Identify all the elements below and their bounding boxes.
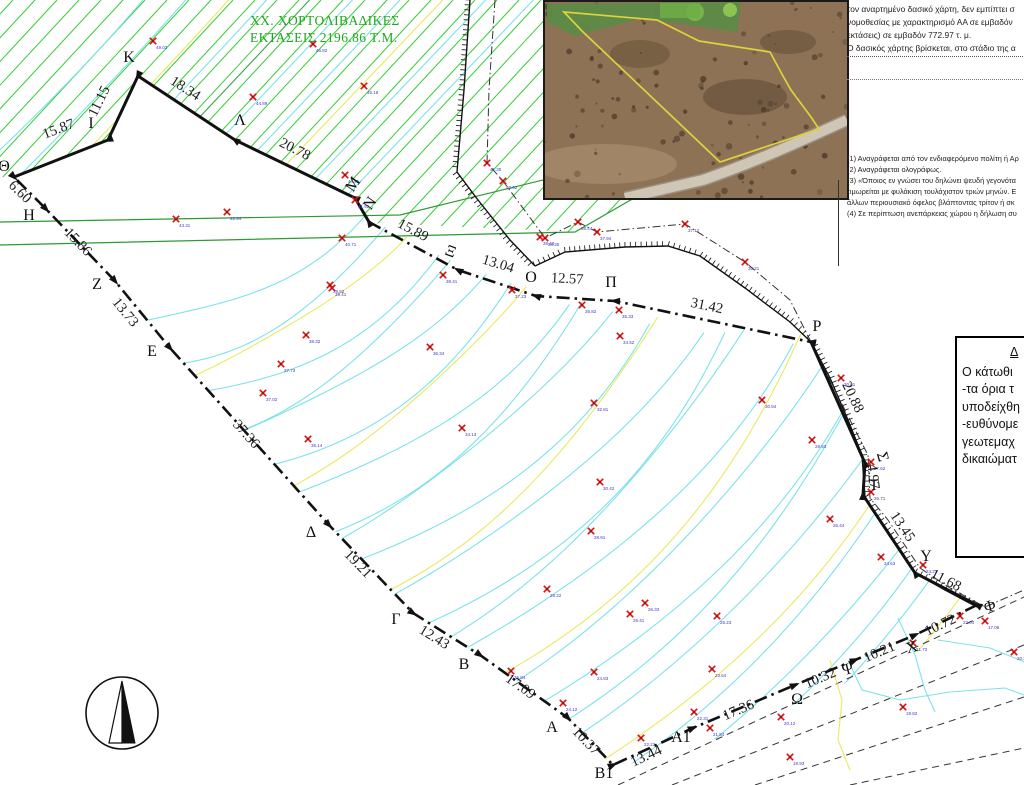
speckle (600, 109, 604, 113)
declaration-line: -ευθύνομε (962, 416, 1024, 434)
distance-label: 12.57 (551, 270, 584, 288)
hatch-line (0, 0, 167, 620)
embankment-tick (484, 212, 488, 215)
spot-elevation-value: 17.06 (988, 625, 1000, 630)
embankment-tick (753, 290, 756, 294)
speckle (738, 173, 745, 180)
spot-elevation-marker: 38.32 (303, 332, 321, 344)
spot-elevation-value: 34.52 (623, 340, 635, 345)
spot-elevation-value: 37.23 (515, 294, 527, 299)
dotted-rule (847, 79, 1024, 80)
spot-elevation-marker: 39.52 (327, 282, 345, 294)
embankment-tick (493, 224, 497, 227)
hatch-line (0, 0, 101, 620)
vertex-label-Κ: Κ (123, 49, 135, 66)
distance-label: 15.87 (40, 116, 76, 143)
hatch-line (0, 0, 519, 620)
speckle (818, 53, 823, 58)
spot-elevation-value: 22.31 (697, 716, 709, 721)
embankment-line (811, 340, 977, 607)
speckle (774, 102, 777, 105)
spot-elevation-marker: 21.84 (707, 725, 725, 737)
speckle (774, 44, 776, 46)
contour-line (106, 216, 365, 329)
contour-line (129, 317, 658, 654)
speckle (566, 48, 572, 54)
embankment-tick (765, 299, 768, 303)
spot-elevation-value: 23.64 (715, 673, 727, 678)
road-dashed-line (755, 697, 1024, 785)
vertex-label-Ζ: Ζ (92, 276, 102, 293)
speckle (611, 97, 614, 100)
speckle (575, 95, 579, 99)
embankment-tick (496, 228, 500, 231)
spot-elevation-marker: 22.04 (957, 613, 975, 625)
distance-label: 13.04 (480, 252, 517, 277)
distance-label: 20.78 (277, 135, 313, 164)
vertex-label-Α1: Α1 (671, 729, 691, 746)
speckle (700, 86, 704, 90)
speckle (713, 57, 717, 61)
spot-elevation-value: 40.62 (506, 185, 518, 190)
spot-elevation-marker: 24.83 (591, 669, 609, 681)
spot-elevation-marker: 37.73 (278, 361, 296, 373)
speckle (683, 109, 687, 113)
speckle (721, 188, 728, 195)
embankment-tick (521, 255, 525, 258)
embankment-tick (704, 255, 707, 259)
embankment-tick (834, 385, 839, 387)
embankment-tick (474, 200, 478, 203)
vertex-label-Υ: Υ (920, 548, 932, 565)
contour-line (141, 343, 876, 785)
vertex-label-Β: Β (459, 656, 470, 673)
vertex-label-Ε: Ε (147, 343, 157, 360)
contour-line (143, 332, 884, 785)
speckle (646, 106, 649, 109)
footnote-line: άλλων περιουσιακό όφελος βλάπτοντας τρίτ… (847, 197, 1024, 208)
stream-line (938, 640, 1024, 662)
speckle (616, 97, 621, 102)
embankment-tick (761, 296, 764, 300)
spot-elevation-marker: 37.12 (682, 221, 700, 233)
spot-elevation-marker: 24.63 (878, 554, 896, 566)
speckle (612, 192, 615, 195)
speckle (672, 140, 675, 143)
speckle (840, 17, 842, 19)
speckle (653, 70, 659, 76)
north-arrow-left-half (109, 681, 122, 743)
speckle (768, 101, 774, 107)
spot-elevation-marker: 36.34 (427, 344, 445, 356)
vertex-label-Φ: Φ (982, 597, 998, 617)
embankment-tick (538, 259, 540, 264)
contour-line (114, 257, 453, 450)
speckle (782, 136, 785, 139)
embankment-tick (823, 362, 827, 364)
spot-elevation-marker: 34.13 (459, 425, 477, 437)
spot-elevation-value: 36.34 (433, 351, 445, 356)
distance-label: 4.97 (863, 463, 882, 490)
spot-elevation-marker: 43.31 (173, 216, 191, 228)
embankment-tick (745, 284, 748, 288)
speckle (766, 109, 769, 112)
spot-elevation-value: 25.23 (720, 620, 732, 625)
declaration-line: -τα όρια τ (962, 381, 1024, 399)
speckle (758, 100, 763, 105)
spot-elevation-marker: 30.42 (597, 479, 615, 491)
speckle (762, 121, 767, 126)
embankment-tick (770, 303, 773, 307)
embankment-tick (782, 312, 785, 316)
speckle (810, 7, 812, 9)
spot-elevation-value: 38.32 (309, 339, 321, 344)
spot-elevation-value: 30.84 (765, 404, 777, 409)
embankment-tick (668, 241, 669, 246)
speckle (654, 84, 658, 88)
speckle (640, 52, 642, 54)
vertex-label-Λ: Λ (234, 112, 246, 129)
distance-label: 13.73 (109, 295, 142, 330)
contour-line (0, 0, 310, 325)
topographic-map-canvas: 49.0346.8244.8945.1641.3040.6238.3538.44… (0, 0, 1024, 785)
spot-elevation-value: 40.71 (345, 242, 357, 247)
speckle (741, 31, 746, 36)
embankment-tick (543, 257, 545, 262)
distance-label: 10.32 (802, 665, 838, 692)
declaration-line: γεωτεμαχ (962, 434, 1024, 452)
distance-label: 15.89 (395, 216, 431, 245)
hatch-line (0, 0, 79, 620)
embankment-tick (528, 262, 532, 265)
embankment-tick (480, 208, 484, 211)
contour-line (134, 330, 744, 731)
note-line: νομοθεσίας με χαρακτηρισμό ΑΑ σε εμβαδόν (847, 16, 1024, 29)
note-line: εκτάσεις) σε εμβαδόν 772.97 τ. μ. (847, 29, 1024, 42)
embankment-line (452, 0, 535, 266)
spot-elevation-marker: 42.94 (224, 209, 242, 221)
speckle (744, 61, 748, 65)
speckle (804, 124, 809, 129)
speckle (795, 8, 798, 11)
speckle (595, 148, 597, 150)
embankment-tick (825, 367, 829, 369)
speckle (777, 85, 780, 88)
embankment-tick (465, 188, 469, 191)
spot-elevation-value: 20.31 (1017, 656, 1024, 661)
speckle (784, 103, 790, 109)
embankment-tick (774, 306, 777, 310)
spot-elevation-value: 35.14 (311, 443, 323, 448)
embankment-tick (798, 326, 801, 330)
embankment-tick (830, 376, 835, 378)
speckle (696, 190, 701, 195)
vertex-label-Ο: Ο (525, 269, 537, 286)
vertex-label-Δ: Δ (306, 524, 316, 541)
vertex-label-Ξ: Ξ (443, 242, 458, 261)
embankment-tick (858, 443, 863, 445)
vertex-label-Ω: Ω (791, 691, 803, 708)
road-dashed-line (850, 748, 1024, 785)
embankment-tick (510, 244, 514, 247)
forest-map-note-block: τον αναρτημένο δασικό χάρτη, δεν εμπίπτε… (847, 3, 1024, 80)
contour-line (111, 255, 439, 404)
spot-elevation-value: 43.31 (179, 223, 191, 228)
hatch-line (0, 0, 13, 620)
embankment-tick (679, 245, 680, 250)
speckle (716, 152, 720, 156)
speckle (580, 108, 584, 112)
hatch-line (0, 0, 343, 620)
spot-elevation-value: 37.12 (688, 228, 700, 233)
embankment-tick (684, 246, 685, 251)
speckle (596, 79, 600, 83)
spot-elevation-marker: 34.52 (617, 333, 635, 345)
vertex-label-Ρ: Ρ (813, 318, 822, 335)
embankment-tick (553, 252, 555, 257)
speckle (643, 22, 646, 25)
embankment-tick (794, 322, 797, 326)
spot-elevation-value: 24.63 (884, 561, 896, 566)
spot-elevation-value: 39.52 (333, 289, 345, 294)
speckle (821, 95, 826, 100)
north-arrow-right-half (122, 681, 135, 743)
footnote-line: τιμωρείται με φυλάκιση τουλάχιστον τριών… (847, 186, 1024, 197)
speckle (601, 124, 604, 127)
contour-line (130, 333, 704, 676)
embankment-tick (733, 275, 736, 279)
speckle (748, 124, 750, 126)
vertex-marker (530, 291, 542, 301)
declaration-box: Δ Ο κάτωθι -τα όρια τ υποδείχθη -ευθύνομ… (955, 336, 1024, 558)
embankment-tick (832, 381, 837, 383)
spot-elevation-value: 28.91 (594, 535, 606, 540)
speckle (742, 181, 744, 183)
embankment-tick (517, 251, 521, 254)
spot-elevation-value: 24.83 (597, 676, 609, 681)
embankment-tick (462, 184, 466, 187)
embankment-tick (749, 287, 752, 291)
speckle (592, 78, 595, 81)
spot-elevation-marker: 28.91 (588, 528, 606, 540)
spot-elevation-marker: 37.02 (260, 390, 278, 402)
hatch-line (0, 0, 321, 620)
vertex-label-Ι: Ι (88, 115, 93, 132)
embankment-tick (673, 243, 674, 248)
distance-label: 11.15 (85, 83, 113, 119)
note-line-underlined: Ο δασικός χάρτης βρίσκεται, στο στάδιο τ… (847, 42, 1024, 57)
spot-elevation-value: 38.44 (581, 226, 593, 231)
vertex-label-Γ: Γ (391, 611, 400, 628)
grassland-hatch (0, 0, 1024, 620)
footnote-line: (1) Αναγράφεται από τον ενδιαφερόμενο πο… (847, 153, 1024, 164)
survey-map-screen: 49.0346.8244.8945.1641.3040.6238.3538.44… (0, 0, 1024, 785)
embankment-tick (689, 248, 690, 253)
note-line: τον αναρτημένο δασικό χάρτη, δεν εμπίπτε… (847, 3, 1024, 16)
spot-elevation-marker: 24.12 (560, 700, 578, 712)
spot-elevation-marker: 45.16 (361, 83, 379, 95)
hatch-line (0, 0, 57, 620)
vertex-label-Σ: Σ (873, 450, 892, 463)
embankment-tick (790, 318, 793, 322)
hatch-line (0, 0, 35, 620)
speckle (726, 143, 733, 150)
footnote-line: (4) Σε περίπτωση ανεπάρκειας χώρου η δήλ… (847, 208, 1024, 219)
speckle (575, 125, 577, 127)
speckle (618, 173, 621, 176)
spot-elevation-value: 42.94 (230, 216, 242, 221)
grassland-area-label-line1: ΧΧ. ΧΟΡΤΟΛΙΒΑΔΙΚΕΣ (250, 12, 400, 29)
spot-elevation-marker: 35.14 (305, 436, 323, 448)
spot-elevation-value: 24.12 (566, 707, 578, 712)
vegetation-patch (723, 3, 737, 17)
embankment-tick (828, 371, 832, 373)
footnote-line: (2) Αναγράφεται ολογράφως. (847, 164, 1024, 175)
embankment-tick (737, 278, 740, 282)
satellite-inset-image (545, 2, 847, 198)
dark-patch (610, 40, 670, 68)
embankment-tick (700, 252, 703, 256)
contour-line (111, 237, 407, 401)
speckle (565, 179, 569, 183)
hatch-line (0, 0, 277, 620)
speckle (728, 120, 733, 125)
declaration-header: Δ (1010, 344, 1024, 362)
spot-elevation-value: 22.04 (963, 620, 975, 625)
declaration-line: υποδείχθη (962, 399, 1024, 417)
speckle (590, 56, 593, 59)
declaration-line: Ο κάτωθι (962, 364, 1024, 382)
spot-elevation-marker: 26.44 (827, 516, 845, 528)
embankment-tick (821, 358, 825, 360)
distance-label: 10.21 (861, 639, 897, 666)
spot-elevation-value: 34.13 (465, 432, 477, 437)
distance-label: 10.37 (569, 724, 603, 759)
distance-label: 31.42 (689, 295, 724, 317)
vertex-label-Η: Η (23, 207, 35, 224)
speckle (711, 161, 715, 165)
contour-line (155, 311, 1024, 785)
spot-elevation-marker: 30.84 (759, 397, 777, 409)
speckle (817, 189, 823, 195)
speckle (570, 133, 575, 138)
distance-label: 10.72 (922, 611, 958, 639)
speckle (748, 189, 753, 194)
spot-elevation-marker: 22.31 (691, 709, 709, 721)
spot-elevation-value: 38.43 (543, 241, 555, 246)
embankment-tick (487, 216, 491, 219)
embankment-tick (729, 272, 732, 276)
spot-elevation-marker: 38.41 (440, 272, 458, 284)
footnotes-block: (1) Αναγράφεται από τον ενδιαφερόμενο πο… (847, 153, 1024, 219)
spot-elevation-marker: 20.12 (778, 714, 796, 726)
spot-elevation-value: 46.82 (316, 48, 328, 53)
embankment-tick (818, 353, 822, 355)
contour-line (123, 302, 582, 570)
spot-elevation-value: 32.81 (597, 407, 609, 412)
spot-elevation-marker: 49.03 (150, 38, 168, 50)
vertex-label-Β1: Β1 (595, 765, 614, 782)
spot-elevation-marker: 35.21 (742, 259, 760, 271)
spot-elevation-value: 20.12 (784, 721, 796, 726)
embankment-tick (778, 309, 781, 313)
vertex-label-Α: Α (546, 719, 558, 736)
contour-line (0, 0, 400, 420)
embankment-tick (524, 259, 528, 262)
spot-elevation-value: 26.33 (648, 607, 660, 612)
spot-elevation-marker: 20.31 (1011, 649, 1024, 661)
distance-label: 19.21 (341, 547, 375, 582)
embankment-tick (506, 240, 510, 243)
spot-elevation-value: 49.03 (156, 45, 168, 50)
contour-line (153, 318, 1024, 785)
spot-elevation-value: 19.82 (906, 711, 918, 716)
speckle (762, 167, 764, 169)
embankment-tick (836, 390, 841, 392)
embankment-tick (477, 204, 481, 207)
dark-patch (760, 30, 816, 54)
spot-elevation-marker: 26.33 (642, 600, 660, 612)
vertex-marker (610, 297, 620, 305)
speckle (596, 103, 598, 105)
embankment-tick (456, 176, 460, 179)
speckle (594, 152, 597, 155)
contour-line (153, 317, 1024, 785)
contour-line (135, 344, 793, 749)
contour-line (149, 331, 1024, 785)
embankment-tick (725, 269, 728, 273)
vertex-marker (789, 680, 801, 690)
embankment-tick (514, 247, 518, 250)
vertex-label-Π: Π (605, 274, 617, 291)
spot-elevation-value: 35.33 (622, 314, 634, 319)
spot-elevation-marker: 17.06 (982, 618, 1000, 630)
embankment-tick (712, 261, 715, 265)
spot-elevation-marker: 19.82 (900, 704, 918, 716)
embankment-tick (757, 293, 760, 297)
contour-line (144, 341, 936, 785)
hatch-line (0, 0, 563, 620)
spot-elevation-value: 21.84 (713, 732, 725, 737)
embankment-tick (708, 258, 711, 262)
speckle (574, 170, 581, 177)
spot-elevation-value: 44.89 (256, 101, 268, 106)
vertex-label-Χ: Χ (904, 638, 920, 658)
spot-elevation-value: 26.71 (874, 496, 886, 501)
spot-elevation-marker: 26.41 (627, 611, 645, 623)
embankment-tick (558, 250, 560, 255)
speckle (679, 131, 685, 137)
speckle (700, 76, 706, 82)
spot-elevation-marker: 28.22 (544, 586, 562, 598)
speckle (761, 107, 767, 113)
embankment-tick (453, 172, 457, 175)
spot-elevation-value: 26.44 (833, 523, 845, 528)
spot-elevation-value: 45.16 (367, 90, 379, 95)
speckle (598, 64, 603, 69)
dark-patch (703, 79, 787, 115)
speckle (837, 12, 843, 18)
vertex-marker (452, 264, 464, 275)
speckle (832, 31, 834, 33)
spot-elevation-value: 41.30 (490, 167, 502, 172)
spot-elevation-value: 30.42 (603, 486, 615, 491)
spot-elevation-value: 28.22 (550, 593, 562, 598)
speckle (660, 139, 666, 145)
hatch-line (0, 0, 453, 620)
speckle (711, 144, 714, 147)
grassland-area-label-line2: ΕΚΤΑΣΕΙΣ 2196.86 Τ.Μ. (250, 29, 400, 46)
